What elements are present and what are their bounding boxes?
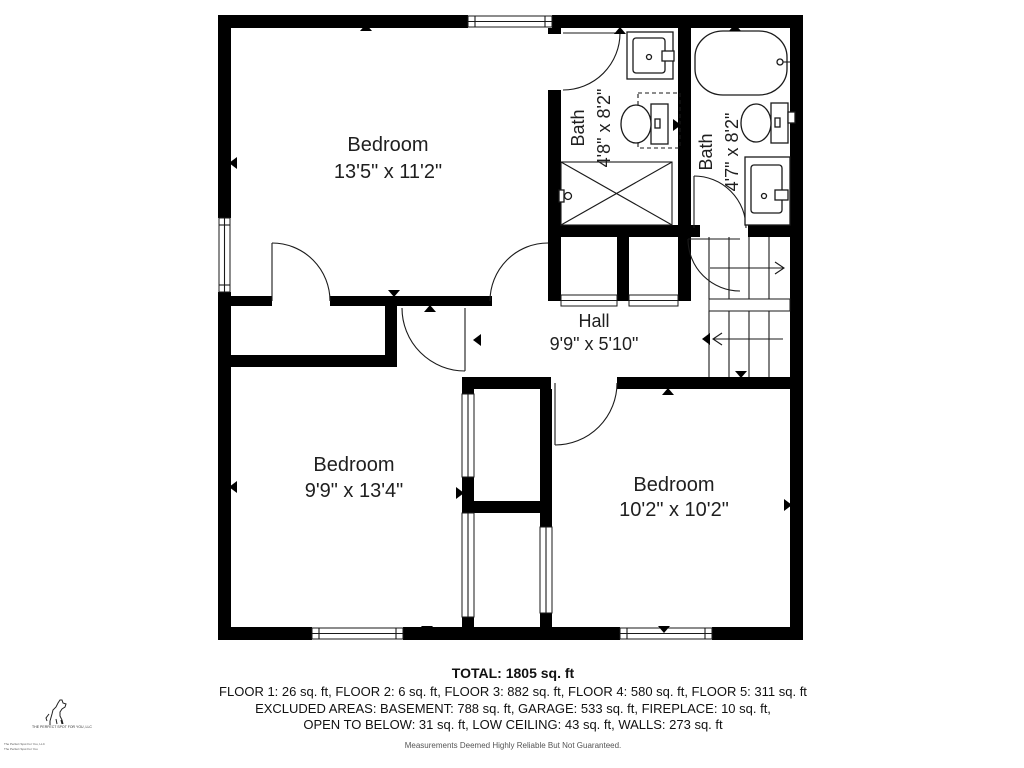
room-dims-bath-2: 4'7" x 8'2" [722, 113, 742, 192]
corner-text-1: The Perfect Spot For You, LLC [4, 742, 46, 746]
toilet-icon [741, 103, 795, 143]
room-dims-bedroom-2: 9'9" x 13'4" [305, 480, 404, 502]
walls [218, 15, 803, 640]
stairs [702, 237, 790, 377]
room-label-hall: Hall [578, 311, 609, 331]
room-dims-bedroom-3: 10'2" x 10'2" [619, 499, 729, 521]
floorplan-svg: Bedroom 13'5" x 11'2" Bath 4'8" x 8'2" B… [0, 0, 1024, 768]
summary-floors: FLOOR 1: 26 sq. ft, FLOOR 2: 6 sq. ft, F… [219, 684, 807, 699]
closet-panel-right-lower [540, 527, 552, 613]
room-dims-bath-1: 4'8" x 8'2" [594, 89, 614, 168]
hall-closet-bifold-a [561, 295, 617, 306]
room-label-bath-1: Bath [568, 109, 588, 146]
window-bottom-left [312, 628, 403, 639]
stairs-landing [709, 299, 790, 311]
room-label-bath-2: Bath [696, 133, 716, 170]
door-bedroom-2 [402, 308, 465, 371]
wall-ticks [229, 24, 792, 633]
summary-excluded-2: OPEN TO BELOW: 31 sq. ft, LOW CEILING: 4… [303, 717, 723, 732]
bath-2-fixtures [695, 31, 795, 225]
hall-closet-bifold-b [629, 295, 678, 306]
door-bedroom-1-closet [272, 243, 330, 301]
room-label-bedroom-3: Bedroom [633, 474, 714, 496]
window-top [468, 16, 552, 27]
closet-panel-left-upper [462, 394, 474, 477]
toilet-icon [621, 93, 680, 148]
room-dims-bedroom-1: 13'5" x 11'2" [334, 161, 442, 183]
floorplan-page: Bedroom 13'5" x 11'2" Bath 4'8" x 8'2" B… [0, 0, 1024, 768]
corner-text-2: The Perfect Spot For You [4, 747, 38, 751]
bathtub-icon [695, 31, 790, 95]
summary-disclaimer: Measurements Deemed Highly Reliable But … [405, 741, 622, 750]
door-bedroom-1-main [490, 243, 548, 301]
summary-total: TOTAL: 1805 sq. ft [452, 665, 575, 681]
door-stair-landing [688, 239, 740, 291]
window-left [219, 218, 230, 292]
door-bedroom-3 [555, 383, 617, 445]
logo: THE PERFECT SPOT FOR YOU, LLC The Perfec… [4, 700, 92, 751]
room-label-bedroom-1: Bedroom [347, 134, 428, 156]
closet-panel-left-lower [462, 513, 474, 617]
dog-icon [46, 700, 66, 725]
room-label-bedroom-2: Bedroom [313, 454, 394, 476]
room-dims-hall: 9'9" x 5'10" [550, 334, 639, 354]
shower-icon [559, 162, 672, 225]
stairs-upper-flight [709, 237, 784, 299]
sink-vanity-icon [745, 157, 790, 225]
logo-caption: THE PERFECT SPOT FOR YOU, LLC [32, 725, 92, 729]
stairs-lower-flight [702, 311, 783, 377]
sink-vanity-icon [627, 32, 674, 79]
summary-block: TOTAL: 1805 sq. ft FLOOR 1: 26 sq. ft, F… [219, 665, 807, 750]
door-bath-1 [563, 33, 620, 90]
summary-excluded-1: EXCLUDED AREAS: BASEMENT: 788 sq. ft, GA… [255, 701, 771, 716]
